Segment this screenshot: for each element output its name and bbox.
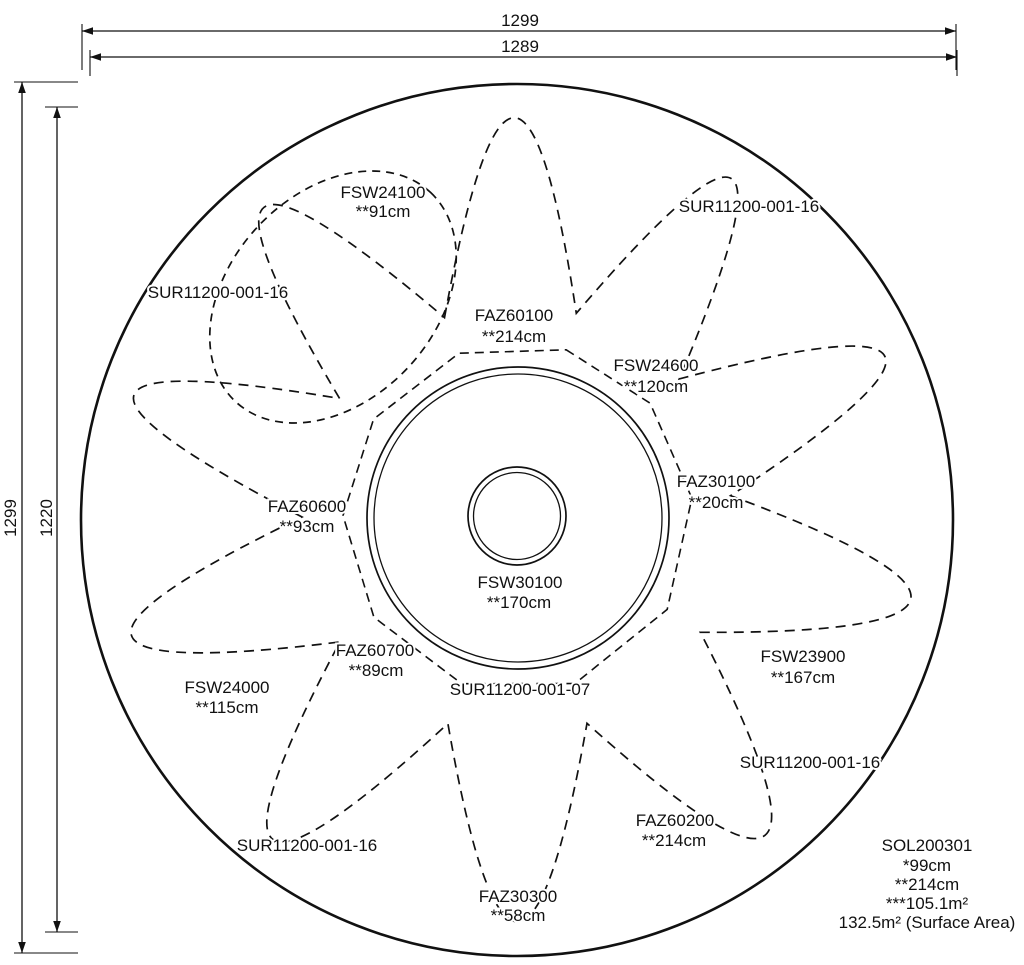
label-fsw30100-height: **170cm [487, 593, 551, 612]
summary-line3: ***105.1m² [886, 894, 969, 913]
label-fsw24600-code: FSW24600 [613, 356, 698, 375]
label-fsw24100-code: FSW24100 [340, 183, 425, 202]
label-faz30300-height: **58cm [491, 906, 546, 925]
label-fsw23900-code: FSW23900 [760, 647, 845, 666]
label-surfacing-bottom-left: SUR11200-001-16 [237, 836, 378, 855]
label-surfacing-bottom-right: SUR11200-001-16 [740, 753, 881, 772]
dim-value-left-outer: 1299 [1, 499, 20, 537]
label-faz60200-height: **214cm [642, 831, 706, 850]
equipment-labels: FSW24100 **91cm FAZ60100 **214cm FSW2460… [148, 183, 1016, 932]
label-fsw24000-height: **115cm [196, 698, 259, 717]
label-faz60700-height: **89cm [349, 661, 404, 680]
summary-block: SOL200301 *99cm **214cm ***105.1m² 132.5… [839, 836, 1016, 932]
label-faz60600-height: **93cm [280, 517, 335, 536]
label-faz60700-code: FAZ60700 [336, 641, 414, 660]
label-faz30100-height: **20cm [689, 493, 744, 512]
summary-line4: 132.5m² (Surface Area) [839, 913, 1016, 932]
dim-value-top-outer: 1299 [501, 11, 539, 30]
summary-line2: **214cm [895, 875, 959, 894]
label-faz60100-code: FAZ60100 [475, 306, 553, 325]
label-fsw24600-height: **120cm [624, 377, 688, 396]
label-fsw24000-code: FSW24000 [184, 678, 269, 697]
label-surfacing-center: SUR11200-001-07 [450, 680, 591, 699]
dim-value-left-inner: 1220 [37, 499, 56, 537]
label-faz60600-code: FAZ60600 [268, 497, 346, 516]
label-faz30100-code: FAZ30100 [677, 472, 755, 491]
site-plan-page: 1299 1289 1299 1220 FSW24100 **91cm FAZ6… [0, 0, 1024, 965]
center-circle-outer [468, 467, 566, 565]
dimension-lines: 1299 1289 1299 1220 [1, 11, 957, 953]
label-surfacing-top-right: SUR11200-001-16 [679, 197, 820, 216]
dim-value-top-inner: 1289 [501, 37, 539, 56]
site-plan-drawing: 1299 1289 1299 1220 FSW24100 **91cm FAZ6… [0, 0, 1024, 965]
label-surfacing-top-left: SUR11200-001-16 [148, 283, 289, 302]
label-fsw30100-code: FSW30100 [477, 573, 562, 592]
drawing-geometry [81, 48, 953, 956]
label-fsw24100-height: **91cm [356, 202, 411, 221]
label-faz60100-height: **214cm [482, 327, 546, 346]
label-faz60200-code: FAZ60200 [636, 811, 714, 830]
summary-line1: *99cm [903, 856, 951, 875]
summary-code: SOL200301 [882, 836, 973, 855]
label-faz30300-code: FAZ30300 [479, 887, 557, 906]
label-fsw23900-height: **167cm [771, 668, 835, 687]
